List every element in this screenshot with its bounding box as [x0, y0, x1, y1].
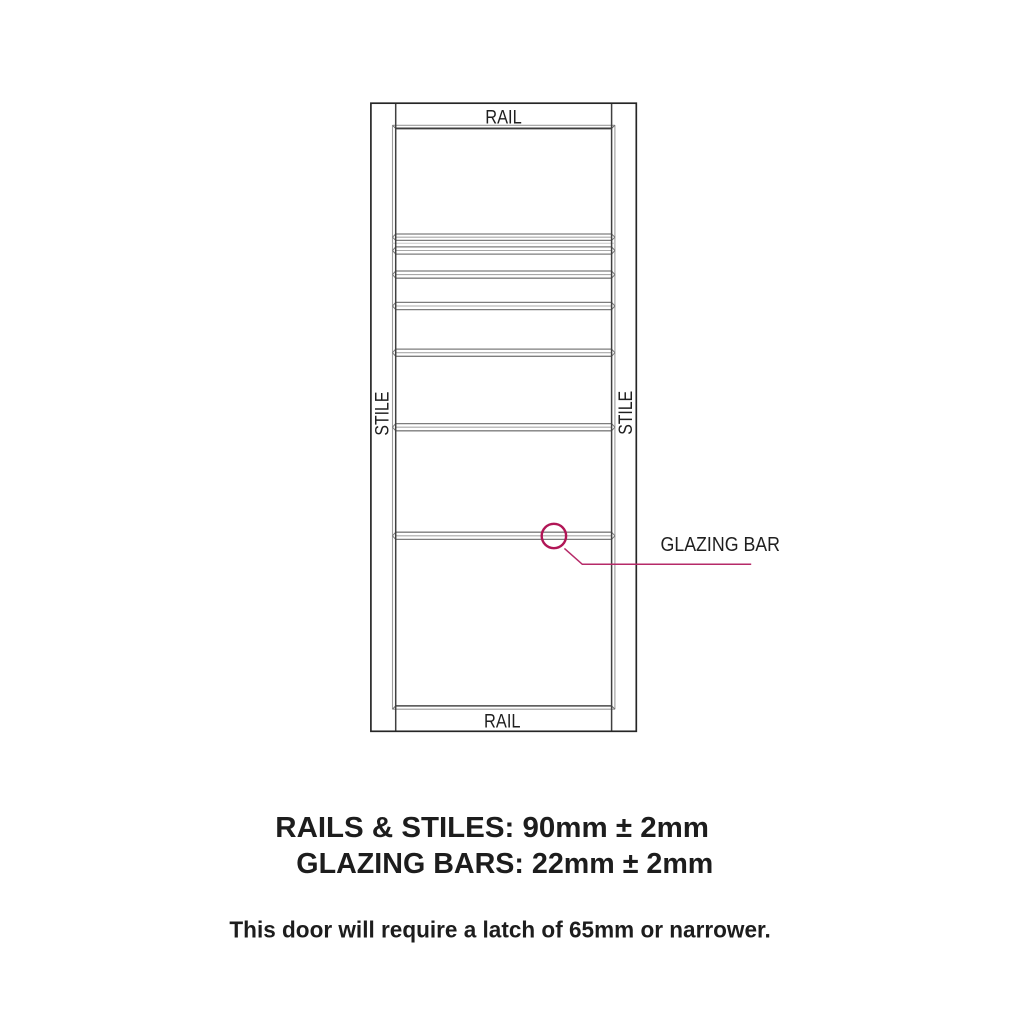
svg-text:GLAZING BAR: GLAZING BAR: [661, 534, 781, 556]
svg-text:STILE: STILE: [616, 391, 637, 435]
svg-text:RAIL: RAIL: [485, 107, 522, 128]
svg-text:STILE: STILE: [372, 392, 393, 436]
svg-text:This door will require a latch: This door will require a latch of 65mm o…: [229, 917, 770, 943]
svg-text:RAIL: RAIL: [484, 712, 521, 733]
svg-text:RAILS & STILES: 90mm ± 2mm: RAILS & STILES: 90mm ± 2mm: [275, 812, 709, 844]
svg-text:GLAZING BARS: 22mm ± 2mm: GLAZING BARS: 22mm ± 2mm: [296, 848, 713, 880]
